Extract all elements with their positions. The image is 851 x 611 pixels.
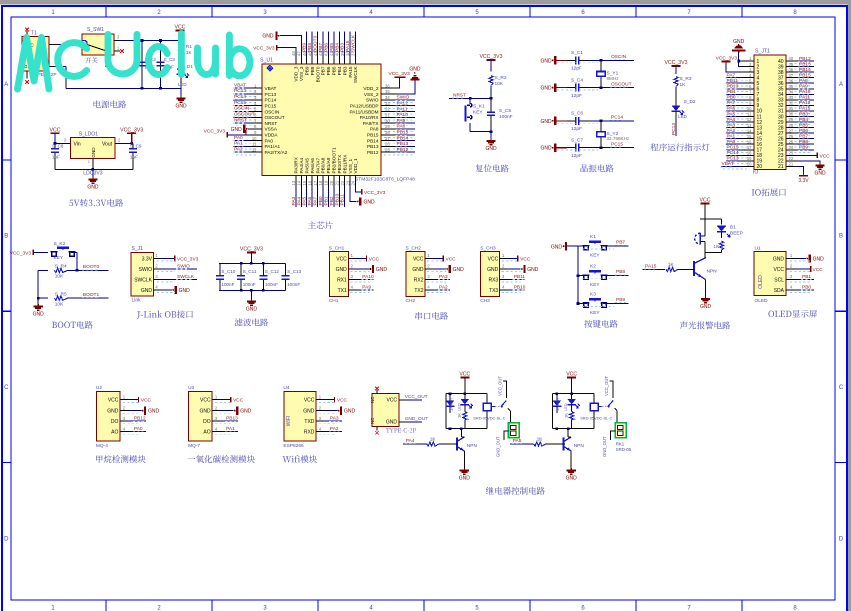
svg-text:GND: GND	[148, 409, 160, 415]
svg-text:PB4: PB4	[334, 43, 340, 52]
svg-text:OSCIN: OSCIN	[265, 109, 280, 114]
svg-text:8MHz: 8MHz	[607, 76, 620, 81]
svg-text:S_LDO1: S_LDO1	[79, 132, 98, 138]
svg-text:GND: GND	[91, 147, 96, 158]
svg-text:36: 36	[789, 78, 794, 83]
svg-text:PA6: PA6	[727, 106, 736, 112]
svg-text:10K: 10K	[55, 274, 64, 280]
svg-text:PB10: PB10	[514, 285, 526, 291]
svg-text:PB5: PB5	[329, 43, 335, 52]
svg-text:14: 14	[297, 180, 302, 185]
svg-text:VCC_3V3: VCC_3V3	[479, 54, 502, 60]
svg-text:GND: GND	[814, 171, 826, 177]
svg-text:26: 26	[385, 142, 390, 147]
svg-text:VCC_OUT: VCC_OUT	[604, 376, 609, 396]
svg-text:1K: 1K	[186, 50, 193, 55]
svg-text:100nF: 100nF	[221, 282, 234, 287]
svg-text:VBAT: VBAT	[234, 82, 246, 88]
svg-text:SWCLK: SWCLK	[177, 274, 195, 280]
svg-text:PB5: PB5	[799, 122, 808, 128]
svg-text:RX3: RX3	[488, 277, 498, 283]
svg-text:KEY: KEY	[590, 282, 600, 288]
svg-text:GND: GND	[485, 146, 497, 152]
svg-text:100nF: 100nF	[499, 114, 513, 120]
svg-text:VCC: VCC	[200, 398, 211, 404]
svg-text:10K: 10K	[55, 301, 64, 307]
svg-text:GND: GND	[240, 409, 252, 415]
svg-text:PC13: PC13	[234, 88, 246, 94]
svg-text:GND: GND	[541, 58, 553, 64]
svg-text:S_CH3: S_CH3	[480, 245, 496, 251]
svg-text:PB3: PB3	[342, 66, 347, 75]
svg-text:PB8: PB8	[799, 139, 808, 145]
svg-text:CH2: CH2	[406, 298, 416, 304]
svg-text:GND: GND	[231, 127, 243, 133]
svg-text:11: 11	[747, 112, 752, 117]
svg-text:PA5/A5: PA5/A5	[304, 158, 309, 174]
svg-text:1N4007: 1N4007	[448, 397, 453, 411]
svg-text:Vin: Vin	[74, 141, 81, 147]
svg-text:GND: GND	[386, 420, 398, 426]
svg-text:TX3: TX3	[489, 288, 498, 294]
svg-text:VCC: VCC	[336, 256, 347, 262]
svg-text:GND: GND	[87, 185, 99, 191]
svg-text:20: 20	[329, 180, 334, 185]
svg-text:35: 35	[385, 89, 390, 94]
svg-text:PB1: PB1	[323, 196, 329, 205]
svg-text:RK1: RK1	[616, 442, 625, 447]
svg-text:PA4: PA4	[727, 117, 736, 123]
svg-text:PA8: PA8	[799, 78, 808, 84]
svg-text:MQ-4: MQ-4	[96, 443, 108, 449]
svg-text:GND: GND	[733, 39, 745, 45]
svg-text:S_C5: S_C5	[499, 108, 511, 114]
svg-text:PB10: PB10	[334, 193, 340, 205]
svg-text:SWCLK: SWCLK	[353, 66, 358, 84]
svg-text:PB2: PB2	[329, 196, 335, 205]
svg-text:GND: GND	[199, 408, 211, 414]
svg-text:PA1: PA1	[727, 134, 736, 140]
svg-text:15: 15	[302, 180, 307, 185]
svg-text:PB14: PB14	[799, 67, 811, 73]
svg-text:VCC_3V3: VCC_3V3	[253, 46, 275, 52]
svg-text:VDD_2: VDD_2	[363, 86, 379, 91]
svg-text:S_R4: S_R4	[55, 264, 67, 270]
svg-text:PA2: PA2	[439, 285, 448, 291]
svg-text:K1: K1	[590, 234, 596, 240]
svg-text:32: 32	[789, 101, 794, 106]
svg-text:VCC: VCC	[446, 257, 457, 263]
svg-text:PA6/A6: PA6/A6	[310, 158, 315, 174]
svg-text:S_C11: S_C11	[243, 269, 257, 274]
svg-text:PA12/USBDP: PA12/USBDP	[350, 104, 379, 109]
svg-text:NPN: NPN	[707, 268, 718, 274]
svg-text:T1: T1	[31, 31, 37, 37]
svg-text:NPN: NPN	[574, 443, 585, 449]
svg-text:VSS_2: VSS_2	[364, 92, 379, 97]
svg-text:PB13: PB13	[799, 61, 811, 67]
svg-text:1K: 1K	[457, 413, 462, 418]
svg-text:A: A	[4, 82, 8, 88]
svg-text:PA10: PA10	[362, 274, 374, 280]
svg-text:GND: GND	[409, 67, 421, 73]
svg-text:PB11/RX: PB11/RX	[342, 154, 347, 174]
svg-text:PA6: PA6	[307, 196, 313, 205]
svg-text:PA15: PA15	[799, 106, 811, 112]
svg-text:20: 20	[747, 162, 752, 167]
svg-text:PA0: PA0	[234, 135, 243, 141]
svg-text:PC15: PC15	[727, 145, 739, 151]
svg-text:PA8: PA8	[397, 124, 406, 130]
svg-text:TXD: TXD	[304, 419, 314, 425]
svg-text:21: 21	[789, 162, 794, 167]
svg-text:MQ-7: MQ-7	[188, 443, 200, 449]
svg-text:KEY: KEY	[590, 310, 600, 316]
svg-text:BOOT0: BOOT0	[313, 35, 319, 52]
svg-text:PC13: PC13	[727, 156, 739, 162]
svg-text:NRST: NRST	[265, 121, 278, 126]
svg-text:SRD-05VDC-SL-C: SRD-05VDC-SL-C	[580, 416, 612, 421]
svg-text:12: 12	[747, 117, 752, 122]
svg-text:VCC: VCC	[700, 198, 711, 204]
svg-text:38: 38	[789, 67, 794, 72]
svg-text:1K: 1K	[668, 262, 675, 267]
svg-text:VCC: VCC	[413, 256, 424, 262]
svg-text:LED: LED	[678, 114, 687, 119]
svg-text:SWIO: SWIO	[139, 267, 152, 273]
svg-text:13: 13	[291, 180, 296, 185]
svg-text:SCL: SCL	[774, 277, 784, 283]
svg-text:B1: B1	[730, 225, 736, 231]
svg-text:PB7: PB7	[321, 66, 326, 75]
svg-text:OLED: OLED	[758, 275, 764, 289]
svg-text:GND: GND	[179, 288, 191, 294]
svg-text:S_C1: S_C1	[571, 50, 583, 56]
svg-text:S_C6: S_C6	[571, 111, 583, 117]
svg-text:TX1: TX1	[338, 288, 347, 294]
svg-text:26: 26	[789, 134, 794, 139]
svg-text:21: 21	[778, 164, 784, 170]
svg-text:30: 30	[789, 112, 794, 117]
svg-text:LED: LED	[456, 403, 461, 411]
svg-text:S_CH1: S_CH1	[329, 245, 345, 251]
svg-text:S_R3: S_R3	[680, 76, 692, 82]
svg-text:PB2/BOOT1: PB2/BOOT1	[332, 147, 337, 173]
svg-text:PB0: PB0	[802, 285, 811, 291]
svg-text:PA11: PA11	[397, 106, 408, 112]
svg-text:VCC_3V3: VCC_3V3	[389, 71, 411, 77]
svg-text:BOOT0: BOOT0	[83, 264, 100, 270]
svg-text:GND: GND	[527, 267, 539, 273]
svg-text:PB12: PB12	[799, 56, 811, 62]
svg-text:1K: 1K	[680, 82, 687, 88]
svg-text:1uF: 1uF	[52, 155, 60, 160]
svg-text:33: 33	[385, 101, 390, 106]
svg-text:S_C3: S_C3	[164, 57, 176, 62]
svg-text:PA3: PA3	[727, 122, 736, 128]
svg-text:PB13: PB13	[226, 416, 238, 422]
svg-text:PC14: PC14	[234, 94, 246, 100]
svg-text:PC14: PC14	[727, 150, 739, 156]
svg-text:BEEP: BEEP	[730, 231, 743, 237]
svg-text:PA2/TX/A2: PA2/TX/A2	[265, 150, 288, 155]
svg-text:PA0: PA0	[134, 426, 143, 432]
svg-text:GND: GND	[336, 267, 348, 273]
svg-text:GND: GND	[246, 307, 258, 313]
svg-text:U4: U4	[283, 385, 289, 391]
svg-text:K3: K3	[590, 291, 596, 297]
svg-text:S_C13: S_C13	[287, 269, 301, 274]
svg-text:PB0/A8: PB0/A8	[321, 157, 326, 173]
svg-text:VBAT: VBAT	[265, 86, 277, 91]
svg-text:GND: GND	[813, 257, 825, 263]
svg-text:13: 13	[747, 123, 752, 128]
svg-text:IO: IO	[753, 170, 758, 176]
svg-text:VCC_OUT: VCC_OUT	[497, 376, 502, 396]
svg-text:PA15: PA15	[348, 66, 353, 78]
svg-text:1uF: 1uF	[130, 155, 138, 160]
svg-text:PA15: PA15	[345, 40, 351, 52]
svg-text:PA2: PA2	[727, 128, 736, 134]
svg-text:K2: K2	[590, 264, 596, 270]
svg-text:PA1: PA1	[234, 141, 243, 147]
svg-text:18: 18	[318, 180, 323, 185]
svg-text:S_CH2: S_CH2	[406, 245, 422, 251]
svg-text:PB9: PB9	[302, 43, 308, 52]
svg-text:R1: R1	[186, 44, 192, 49]
svg-text:CH3: CH3	[480, 298, 490, 304]
svg-text:19: 19	[324, 180, 329, 185]
svg-text:OSCOUT: OSCOUT	[611, 81, 632, 87]
svg-text:S_D2: S_D2	[684, 99, 696, 105]
svg-text:PA2: PA2	[330, 426, 339, 432]
svg-text:C: C	[839, 385, 844, 391]
svg-text:NC: NC	[370, 397, 375, 403]
svg-text:PB9: PB9	[799, 145, 808, 151]
svg-text:GND: GND	[453, 267, 465, 273]
svg-text:1K: 1K	[714, 244, 719, 249]
svg-text:PA10: PA10	[799, 89, 811, 95]
svg-text:RXD: RXD	[304, 429, 315, 435]
svg-text:VCC_3V3: VCC_3V3	[204, 128, 226, 134]
svg-text:PB3: PB3	[340, 43, 346, 52]
svg-text:GND: GND	[262, 34, 274, 40]
svg-text:PC15: PC15	[611, 142, 623, 148]
svg-text:GND: GND	[541, 119, 553, 125]
svg-text:PA1/A1: PA1/A1	[265, 144, 281, 149]
svg-text:PB4: PB4	[337, 66, 342, 75]
svg-text:PC14: PC14	[265, 98, 277, 103]
svg-text:VCC: VCC	[304, 398, 315, 404]
svg-text:LED: LED	[563, 403, 568, 411]
svg-text:PA4: PA4	[296, 196, 302, 205]
svg-text:S_C4: S_C4	[571, 77, 583, 83]
svg-text:VCC_3V3: VCC_3V3	[10, 250, 32, 256]
svg-text:PB5: PB5	[332, 66, 337, 75]
svg-text:39: 39	[789, 62, 794, 67]
svg-text:S_U1: S_U1	[260, 58, 273, 64]
svg-text:23: 23	[345, 180, 350, 185]
svg-text:SRD-05: SRD-05	[616, 447, 632, 452]
svg-text:12pF: 12pF	[571, 126, 582, 132]
svg-text:3.3V: 3.3V	[798, 178, 809, 184]
svg-text:VCC: VCC	[386, 398, 397, 404]
svg-text:S_JT1: S_JT1	[755, 49, 770, 55]
svg-text:VCC_3V3: VCC_3V3	[177, 257, 199, 263]
svg-text:34: 34	[385, 95, 390, 100]
svg-text:VCC: VCC	[141, 398, 152, 404]
svg-text:12pF: 12pF	[571, 93, 582, 99]
svg-text:PB1/A9: PB1/A9	[326, 157, 331, 173]
svg-text:PA9/TX: PA9/TX	[363, 121, 380, 126]
svg-text:34: 34	[789, 90, 794, 95]
svg-text:PB13: PB13	[397, 141, 409, 147]
svg-text:PA3: PA3	[439, 274, 448, 280]
svg-text:PA9: PA9	[799, 84, 808, 90]
svg-text:VCC: VCC	[773, 267, 784, 273]
svg-text:GND_OUT: GND_OUT	[405, 416, 429, 422]
svg-text:PB6: PB6	[799, 128, 808, 134]
svg-text:GND: GND	[376, 267, 388, 273]
svg-text:WIFI: WIFI	[286, 416, 292, 427]
svg-text:OLED: OLED	[755, 298, 769, 304]
svg-text:A: A	[839, 82, 843, 88]
svg-text:U1: U1	[755, 245, 761, 251]
svg-text:10K: 10K	[495, 81, 504, 87]
svg-text:GND: GND	[459, 476, 471, 482]
svg-text:OSCOUT: OSCOUT	[234, 112, 255, 118]
svg-text:S_R5: S_R5	[55, 292, 67, 298]
svg-text:PA10/RX: PA10/RX	[360, 115, 380, 120]
svg-text:22: 22	[340, 180, 345, 185]
svg-text:PC14: PC14	[611, 115, 623, 121]
svg-text:GND: GND	[541, 86, 553, 92]
svg-text:OSCOUT: OSCOUT	[265, 115, 285, 120]
svg-text:PB11: PB11	[340, 194, 346, 206]
svg-text:PB7: PB7	[616, 240, 625, 246]
svg-text:S_C12: S_C12	[265, 269, 279, 274]
svg-text:VCC: VCC	[233, 398, 244, 404]
svg-text:VCC_3V3: VCC_3V3	[240, 247, 263, 253]
svg-text:KEY: KEY	[590, 253, 600, 259]
svg-text:U2: U2	[96, 385, 102, 391]
svg-text:PA12: PA12	[799, 100, 811, 106]
svg-text:10: 10	[747, 106, 752, 111]
svg-text:29: 29	[789, 117, 794, 122]
svg-text:VDD_1: VDD_1	[353, 158, 358, 174]
svg-text:3.3V: 3.3V	[142, 256, 153, 262]
svg-text:RX2: RX2	[414, 277, 424, 283]
svg-text:PA2: PA2	[234, 146, 243, 152]
svg-text:11: 11	[252, 142, 257, 147]
svg-text:31: 31	[385, 113, 390, 118]
svg-text:PB4: PB4	[799, 117, 808, 123]
svg-text:100nF: 100nF	[243, 282, 256, 287]
svg-text:PB12: PB12	[397, 147, 409, 153]
svg-text:GND: GND	[541, 146, 553, 152]
svg-text:PC15: PC15	[265, 104, 277, 109]
svg-text:36: 36	[385, 83, 390, 88]
svg-text:DO: DO	[203, 419, 211, 425]
svg-text:PA7: PA7	[313, 196, 319, 205]
svg-text:PB10/TX: PB10/TX	[337, 154, 342, 174]
svg-text:PB8: PB8	[307, 43, 313, 52]
svg-text:12pF: 12pF	[571, 153, 582, 159]
svg-text:25: 25	[789, 139, 794, 144]
svg-text:Link: Link	[132, 298, 142, 304]
svg-text:VCC_3V3: VCC_3V3	[120, 127, 143, 133]
svg-text:PA5: PA5	[513, 438, 522, 444]
svg-text:U3: U3	[188, 385, 194, 391]
svg-text:PB6: PB6	[326, 66, 331, 75]
svg-text:1K: 1K	[430, 437, 437, 442]
svg-text:GND: GND	[344, 409, 356, 415]
svg-text:VCC: VCC	[820, 153, 831, 159]
svg-text:18: 18	[747, 151, 752, 156]
svg-text:27: 27	[789, 128, 794, 133]
svg-text:ESP8266: ESP8266	[283, 443, 304, 449]
svg-text:17: 17	[747, 145, 752, 150]
svg-text:GND: GND	[33, 312, 45, 318]
svg-text:AO: AO	[203, 429, 210, 435]
svg-text:S_C7: S_C7	[571, 137, 583, 143]
svg-text:100nF: 100nF	[265, 282, 278, 287]
svg-text:VCC: VCC	[337, 398, 348, 404]
svg-text:PB14: PB14	[367, 138, 379, 143]
svg-text:28: 28	[385, 130, 390, 135]
svg-text:S_R2: S_R2	[495, 75, 507, 81]
svg-text:GND: GND	[700, 304, 712, 310]
svg-text:VDD_3: VDD_3	[294, 66, 299, 82]
svg-text:33: 33	[789, 95, 794, 100]
svg-text:PA3/RX: PA3/RX	[294, 156, 299, 173]
svg-text:PA5: PA5	[302, 196, 308, 205]
svg-text:PB9: PB9	[616, 297, 625, 303]
svg-text:OSCIN: OSCIN	[611, 54, 627, 60]
svg-text:NRST: NRST	[234, 117, 247, 123]
svg-text:PA11: PA11	[799, 95, 810, 101]
svg-text:PB9: PB9	[304, 66, 309, 75]
svg-text:TX2: TX2	[414, 288, 423, 294]
svg-text:KEY: KEY	[473, 110, 483, 116]
svg-text:PB1: PB1	[802, 274, 811, 280]
svg-text:VCC: VCC	[813, 267, 824, 273]
svg-text:100nF: 100nF	[287, 282, 300, 287]
svg-text:PC13: PC13	[671, 123, 677, 135]
svg-text:PA9: PA9	[397, 118, 406, 124]
svg-text:VCC: VCC	[369, 257, 380, 263]
svg-text:PA3: PA3	[330, 416, 339, 422]
svg-text:48: 48	[291, 51, 296, 56]
svg-text:B: B	[839, 234, 843, 240]
svg-text:27: 27	[385, 136, 390, 141]
svg-text:PC15: PC15	[234, 100, 246, 106]
svg-text:35: 35	[789, 84, 794, 89]
svg-text:PB12: PB12	[367, 150, 379, 155]
svg-text:PB0: PB0	[727, 95, 736, 101]
svg-text:PB0: PB0	[318, 196, 324, 205]
svg-text:STM32F103C8T6_LQFP48: STM32F103C8T6_LQFP48	[355, 177, 415, 183]
svg-text:GND: GND	[107, 408, 119, 414]
svg-text:PB8: PB8	[310, 66, 315, 75]
svg-text:PA9: PA9	[362, 285, 371, 291]
svg-text:20: 20	[757, 164, 763, 170]
svg-text:47: 47	[297, 51, 302, 56]
svg-text:SWIO: SWIO	[397, 95, 410, 101]
svg-text:BOOT1: BOOT1	[83, 292, 100, 298]
svg-text:GND: GND	[566, 476, 578, 482]
svg-text:PB15: PB15	[799, 73, 811, 79]
